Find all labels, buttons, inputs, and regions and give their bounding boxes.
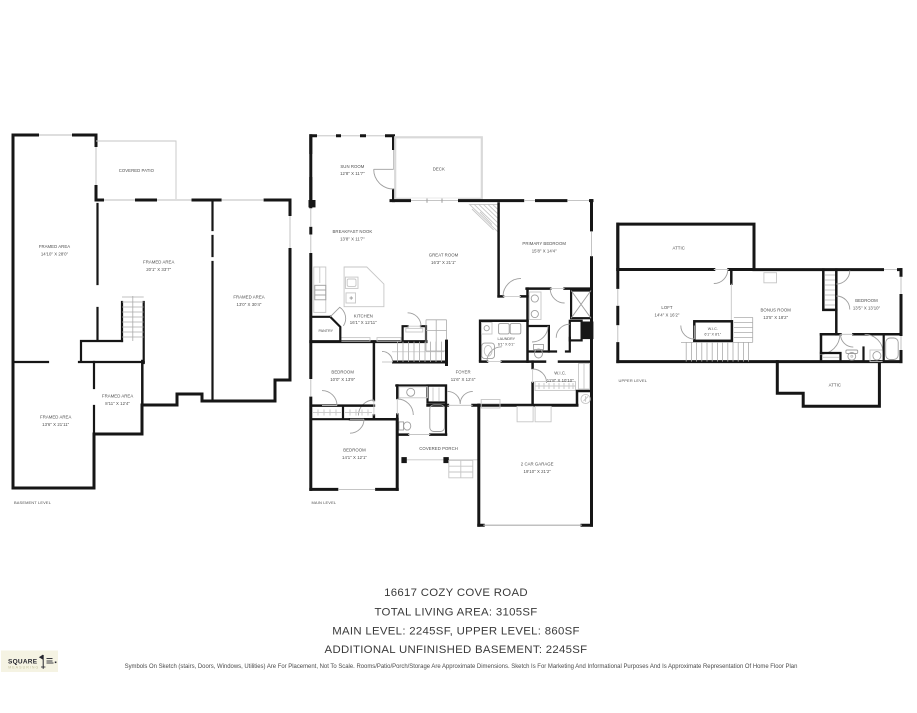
svg-text:UPPER LEVEL: UPPER LEVEL [619,378,648,383]
svg-text:FRAMED AREA: FRAMED AREA [40,415,71,420]
svg-text:BREAKFAST NOOK: BREAKFAST NOOK [333,229,373,234]
svg-text:13'0" X 30'4": 13'0" X 30'4" [237,302,262,307]
svg-text:FRAMED AREA: FRAMED AREA [39,244,70,249]
svg-text:DECK: DECK [433,167,445,172]
svg-text:BEDROOM: BEDROOM [331,370,354,375]
svg-text:13'5" X 18'2": 13'5" X 18'2" [763,315,788,320]
svg-text:6'1" X 8'1": 6'1" X 8'1" [704,333,721,337]
svg-text:16'1" X 12'11": 16'1" X 12'11" [350,320,377,325]
svg-text:14'1" X 12'1": 14'1" X 12'1" [342,455,367,460]
svg-text:2 CAR GARAGE: 2 CAR GARAGE [521,462,554,467]
svg-text:BEDROOM: BEDROOM [855,298,878,303]
svg-text:14'4" X 16'2": 14'4" X 16'2" [655,313,680,318]
svg-text:PANTRY: PANTRY [318,329,333,333]
svg-text:16617 COZY COVE ROAD: 16617 COZY COVE ROAD [384,587,528,599]
svg-text:BEDROOM: BEDROOM [343,448,366,453]
svg-text:W.I.C.: W.I.C. [708,327,718,331]
svg-text:13'6" X 21'11": 13'6" X 21'11" [42,422,69,427]
svg-text:FRAMED AREA: FRAMED AREA [143,260,174,265]
svg-text:11'8" X 10'10": 11'8" X 10'10" [547,378,574,383]
svg-text:8'11" X 12'4": 8'11" X 12'4" [105,401,130,406]
svg-text:LOFT: LOFT [661,305,673,310]
svg-text:FRAMED AREA: FRAMED AREA [233,295,264,300]
svg-text:LAUNDRY: LAUNDRY [498,337,516,341]
svg-text:15'8" X 14'4": 15'8" X 14'4" [532,249,557,254]
svg-text:11'6" X 12'4": 11'6" X 12'4" [451,377,476,382]
svg-text:TOTAL LIVING AREA: 3105SF: TOTAL LIVING AREA: 3105SF [374,607,537,619]
svg-text:10'0" X 13'9": 10'0" X 13'9" [330,377,355,382]
svg-text:FOYER: FOYER [456,370,471,375]
svg-text:COVERED PORCH: COVERED PORCH [419,446,458,451]
svg-text:SUN ROOM: SUN ROOM [340,164,364,169]
svg-text:14'10" X 28'0": 14'10" X 28'0" [41,252,69,257]
svg-text:ATTIC: ATTIC [673,246,685,251]
svg-text:16'3" X 21'1": 16'3" X 21'1" [431,260,456,265]
svg-text:BONUS ROOM: BONUS ROOM [761,308,792,313]
svg-text:W.I.C.: W.I.C. [554,371,566,376]
svg-text:GREAT ROOM: GREAT ROOM [429,253,459,258]
svg-text:12'8" X 11'7": 12'8" X 11'7" [340,171,365,176]
svg-text:13'5" X 13'10": 13'5" X 13'10" [853,306,881,311]
svg-text:BASEMENT LEVEL: BASEMENT LEVEL [14,500,52,505]
svg-text:19'10" X 21'2": 19'10" X 21'2" [524,469,552,474]
svg-text:ADDITIONAL UNFINISHED BASEMENT: ADDITIONAL UNFINISHED BASEMENT: 2245SF [325,644,588,656]
svg-text:FRAMED AREA: FRAMED AREA [102,394,133,399]
svg-text:MAIN LEVEL: MAIN LEVEL [312,500,337,505]
svg-text:20'1" X 33'7": 20'1" X 33'7" [146,267,171,272]
svg-text:MEASURING: MEASURING [8,665,39,669]
svg-text:Symbols On Sketch (stairs, Doo: Symbols On Sketch (stairs, Doors, Window… [125,664,798,670]
svg-text:13'8" X 11'7": 13'8" X 11'7" [340,237,365,242]
svg-text:6'1" X 6'1": 6'1" X 6'1" [498,343,515,347]
svg-text:MAIN LEVEL: 2245SF, UPPER LEVE: MAIN LEVEL: 2245SF, UPPER LEVEL: 860SF [332,626,580,638]
svg-text:PRIMARY BEDROOM: PRIMARY BEDROOM [522,241,566,246]
svg-text:KITCHEN: KITCHEN [354,314,373,319]
svg-text:ATTIC: ATTIC [829,383,841,388]
svg-text:COVERED PATIO: COVERED PATIO [119,168,155,173]
